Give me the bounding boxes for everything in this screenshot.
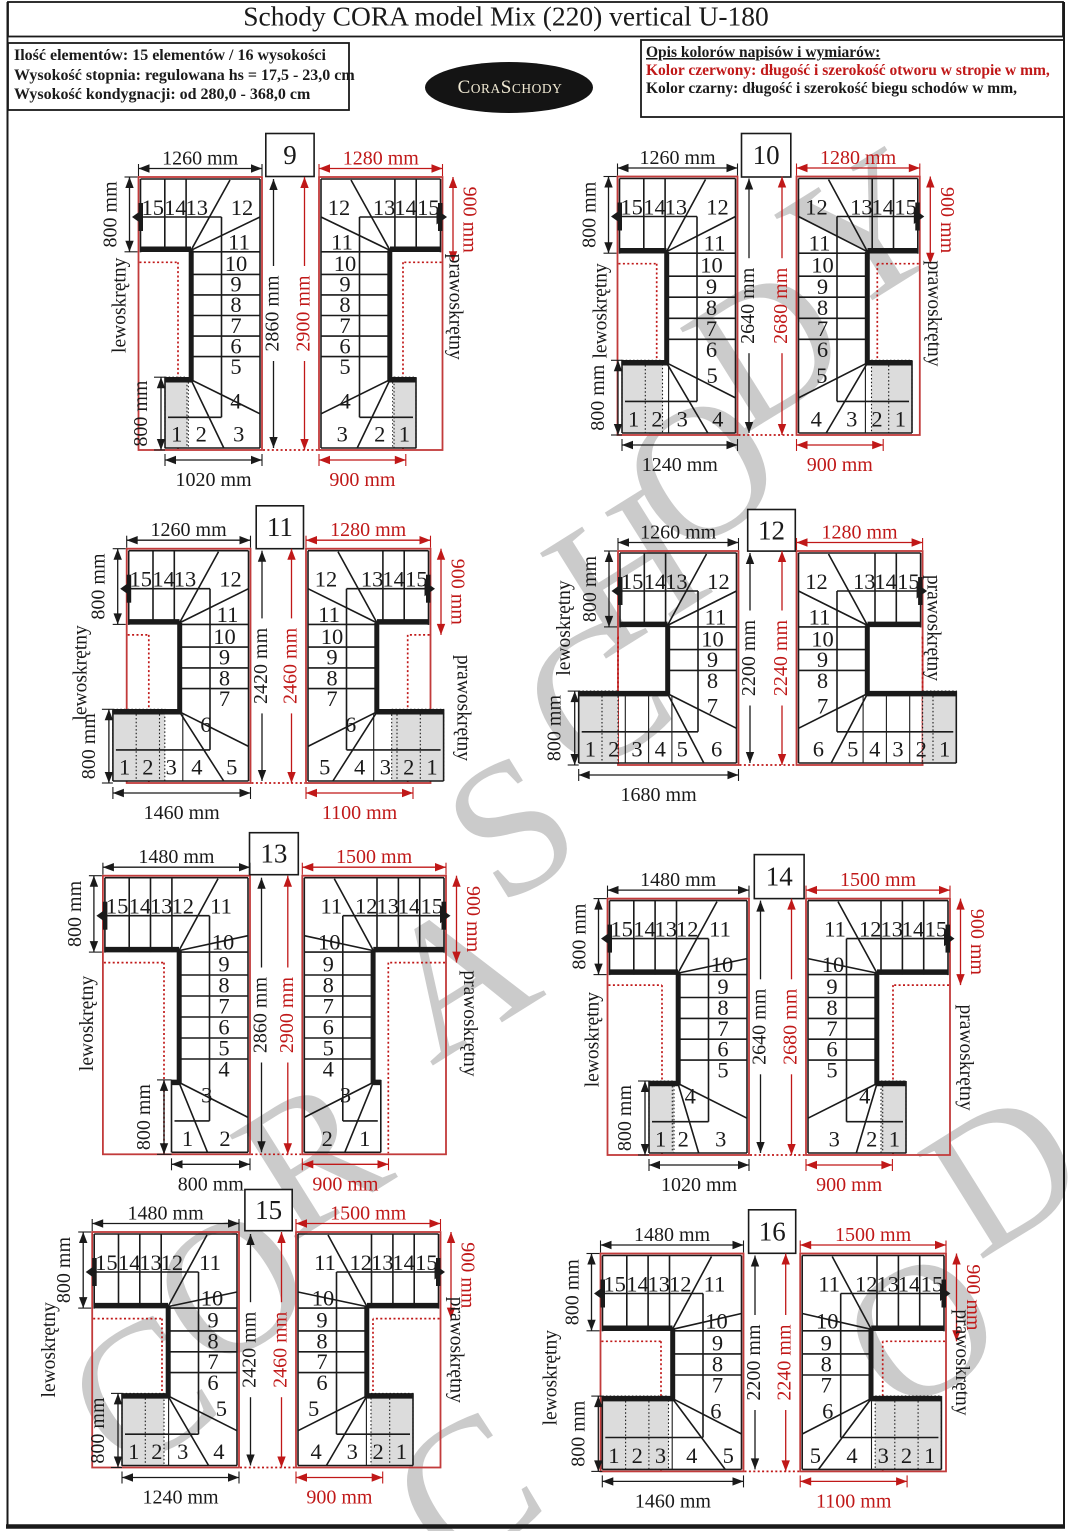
svg-text:13: 13	[880, 917, 903, 942]
svg-text:4: 4	[213, 1439, 224, 1464]
svg-text:1: 1	[889, 1127, 900, 1152]
svg-text:11: 11	[267, 512, 293, 542]
svg-text:12: 12	[161, 1250, 184, 1275]
svg-text:3: 3	[846, 407, 857, 432]
svg-text:14: 14	[643, 195, 666, 220]
svg-text:12: 12	[707, 569, 730, 594]
svg-text:1: 1	[628, 407, 639, 432]
svg-text:lewoskrętny: lewoskrętny	[77, 975, 98, 1071]
svg-text:13: 13	[876, 1272, 899, 1297]
svg-text:900 mm: 900 mm	[816, 1174, 883, 1196]
svg-text:12: 12	[315, 567, 338, 592]
svg-text:13: 13	[648, 1272, 671, 1297]
svg-text:lewoskrętny: lewoskrętny	[554, 580, 575, 676]
svg-text:prawoskrętny: prawoskrętny	[923, 575, 944, 681]
svg-text:15: 15	[894, 195, 917, 220]
svg-text:1480 mm: 1480 mm	[138, 846, 215, 868]
svg-text:6: 6	[822, 1399, 833, 1424]
svg-text:2: 2	[866, 1127, 877, 1152]
svg-text:2200 mm: 2200 mm	[743, 1324, 765, 1401]
svg-text:1240 mm: 1240 mm	[142, 1487, 219, 1509]
svg-text:3: 3	[201, 1082, 212, 1107]
svg-text:1280 mm: 1280 mm	[343, 148, 420, 170]
svg-text:6: 6	[345, 712, 356, 737]
svg-text:8: 8	[817, 668, 828, 693]
svg-text:3: 3	[340, 1082, 351, 1107]
svg-text:800 mm: 800 mm	[53, 1237, 75, 1304]
svg-text:14: 14	[874, 569, 897, 594]
svg-text:1020 mm: 1020 mm	[661, 1174, 738, 1196]
svg-text:4: 4	[339, 389, 350, 414]
svg-text:5: 5	[339, 354, 350, 379]
svg-text:13: 13	[371, 1250, 394, 1275]
svg-text:4: 4	[859, 1084, 870, 1109]
svg-text:2: 2	[372, 1439, 383, 1464]
svg-text:2: 2	[901, 1443, 912, 1468]
svg-text:12: 12	[805, 569, 828, 594]
svg-text:2: 2	[374, 422, 385, 447]
svg-text:2460 mm: 2460 mm	[270, 1311, 292, 1388]
svg-text:7: 7	[817, 694, 828, 719]
svg-text:5: 5	[230, 354, 241, 379]
svg-text:1240 mm: 1240 mm	[642, 454, 719, 476]
svg-text:15: 15	[421, 894, 444, 919]
svg-text:14: 14	[382, 567, 405, 592]
svg-text:3: 3	[878, 1443, 889, 1468]
svg-text:15: 15	[415, 1250, 438, 1275]
svg-text:1100 mm: 1100 mm	[816, 1490, 892, 1512]
svg-text:12: 12	[855, 1272, 878, 1297]
svg-text:2: 2	[219, 1126, 230, 1151]
svg-text:14: 14	[394, 195, 417, 220]
svg-text:14: 14	[118, 1250, 141, 1275]
svg-text:800 mm: 800 mm	[133, 1084, 155, 1151]
svg-text:1500 mm: 1500 mm	[330, 1203, 407, 1225]
svg-text:2900 mm: 2900 mm	[293, 275, 315, 352]
svg-text:8: 8	[707, 668, 718, 693]
svg-text:1: 1	[924, 1443, 935, 1468]
svg-text:14: 14	[898, 1272, 921, 1297]
svg-text:Opis kolorów napisów i wymiaró: Opis kolorów napisów i wymiarów:	[646, 44, 880, 61]
svg-text:2460 mm: 2460 mm	[280, 627, 302, 704]
svg-text:lewoskrętny: lewoskrętny	[583, 992, 604, 1088]
svg-text:6: 6	[817, 337, 828, 362]
svg-text:2200 mm: 2200 mm	[738, 620, 760, 697]
svg-text:6: 6	[706, 337, 717, 362]
svg-text:800 mm: 800 mm	[579, 181, 601, 248]
svg-text:2: 2	[151, 1439, 162, 1464]
svg-text:2640 mm: 2640 mm	[737, 267, 759, 344]
svg-text:12: 12	[676, 917, 699, 942]
svg-text:5: 5	[826, 1058, 837, 1083]
svg-text:1280 mm: 1280 mm	[330, 519, 407, 541]
svg-text:13: 13	[373, 195, 396, 220]
svg-text:prawoskrętny: prawoskrętny	[446, 1297, 467, 1403]
svg-text:4: 4	[310, 1439, 321, 1464]
svg-text:5: 5	[308, 1396, 319, 1421]
svg-text:2: 2	[403, 755, 414, 780]
svg-text:800 mm: 800 mm	[544, 695, 566, 762]
svg-text:5: 5	[723, 1443, 734, 1468]
svg-text:5: 5	[677, 737, 688, 762]
svg-text:2860 mm: 2860 mm	[250, 977, 272, 1054]
svg-text:14: 14	[392, 1250, 415, 1275]
svg-text:CORASCHODY: CORASCHODY	[458, 77, 563, 98]
svg-text:1460 mm: 1460 mm	[144, 802, 221, 824]
svg-text:prawoskrętny: prawoskrętny	[459, 970, 480, 1076]
svg-text:4: 4	[354, 755, 365, 780]
svg-text:800 mm: 800 mm	[78, 713, 100, 780]
svg-text:Kolor czerwony: długość i szer: Kolor czerwony: długość i szerokość otwo…	[646, 62, 1050, 79]
svg-text:5: 5	[706, 363, 717, 388]
svg-text:1260 mm: 1260 mm	[639, 147, 716, 169]
svg-text:13: 13	[186, 195, 209, 220]
svg-text:13: 13	[260, 839, 287, 869]
svg-text:13: 13	[376, 894, 399, 919]
svg-text:12: 12	[669, 1272, 692, 1297]
svg-text:800 mm: 800 mm	[100, 181, 122, 248]
svg-text:900 mm: 900 mm	[807, 454, 874, 476]
svg-text:1: 1	[171, 422, 182, 447]
svg-text:13: 13	[850, 195, 873, 220]
svg-text:4: 4	[686, 1443, 697, 1468]
svg-text:2680 mm: 2680 mm	[780, 988, 802, 1065]
svg-text:Ilość elementów: 15 elementów: Ilość elementów: 15 elementów / 16 wysok…	[14, 47, 327, 64]
svg-text:11: 11	[314, 1250, 336, 1275]
svg-text:7: 7	[707, 694, 718, 719]
svg-text:14: 14	[164, 195, 187, 220]
svg-text:15: 15	[620, 195, 643, 220]
svg-text:11: 11	[824, 917, 846, 942]
svg-text:2240 mm: 2240 mm	[770, 620, 792, 697]
svg-text:900 mm: 900 mm	[459, 187, 481, 254]
svg-text:3: 3	[892, 737, 903, 762]
svg-text:14: 14	[398, 894, 421, 919]
svg-text:12: 12	[706, 195, 729, 220]
svg-text:15: 15	[417, 195, 440, 220]
svg-text:3: 3	[380, 755, 391, 780]
svg-text:1500 mm: 1500 mm	[835, 1224, 912, 1246]
svg-text:13: 13	[361, 567, 384, 592]
svg-text:1480 mm: 1480 mm	[640, 869, 717, 891]
svg-text:1100 mm: 1100 mm	[322, 802, 398, 824]
svg-text:800 mm: 800 mm	[614, 1085, 636, 1152]
svg-text:2: 2	[651, 407, 662, 432]
svg-text:15: 15	[95, 1250, 118, 1275]
svg-text:2: 2	[678, 1127, 689, 1152]
svg-text:Wysokość stopnia: regulowana: Wysokość stopnia: regulowana hs = 17,5 -…	[14, 67, 355, 84]
svg-text:900 mm: 900 mm	[936, 187, 958, 254]
svg-text:3: 3	[655, 1443, 666, 1468]
svg-text:3: 3	[347, 1439, 358, 1464]
svg-text:1: 1	[426, 755, 437, 780]
svg-text:15: 15	[106, 894, 129, 919]
svg-text:1680 mm: 1680 mm	[621, 784, 698, 806]
svg-text:1: 1	[128, 1439, 139, 1464]
svg-text:2: 2	[632, 1443, 643, 1468]
svg-text:prawoskrętny: prawoskrętny	[923, 260, 944, 366]
svg-text:6: 6	[813, 737, 824, 762]
svg-text:14: 14	[766, 862, 794, 892]
svg-text:5: 5	[810, 1443, 821, 1468]
svg-text:12: 12	[328, 195, 351, 220]
svg-text:800 mm: 800 mm	[567, 1400, 589, 1467]
svg-text:3: 3	[166, 755, 177, 780]
svg-text:1260 mm: 1260 mm	[640, 522, 717, 544]
svg-text:1500 mm: 1500 mm	[840, 869, 917, 891]
svg-text:1: 1	[359, 1126, 370, 1151]
svg-text:800 mm: 800 mm	[87, 1397, 109, 1464]
svg-text:11: 11	[199, 1250, 221, 1275]
svg-text:2: 2	[196, 422, 207, 447]
svg-text:1280 mm: 1280 mm	[821, 522, 898, 544]
svg-text:5: 5	[847, 737, 858, 762]
svg-text:13: 13	[853, 569, 876, 594]
svg-text:1500 mm: 1500 mm	[336, 846, 413, 868]
svg-text:lewoskrętny: lewoskrętny	[39, 1302, 60, 1398]
svg-text:800 mm: 800 mm	[587, 364, 609, 431]
svg-text:14: 14	[872, 195, 895, 220]
svg-text:15: 15	[405, 567, 428, 592]
svg-text:2680 mm: 2680 mm	[770, 267, 792, 344]
svg-text:12: 12	[231, 195, 254, 220]
svg-text:7: 7	[821, 1373, 832, 1398]
svg-text:2: 2	[142, 755, 153, 780]
svg-text:7: 7	[712, 1373, 723, 1398]
svg-text:2640 mm: 2640 mm	[749, 988, 771, 1065]
svg-text:11: 11	[818, 1272, 840, 1297]
svg-text:800 mm: 800 mm	[64, 880, 86, 947]
svg-text:lewoskrętny: lewoskrętny	[541, 1330, 562, 1426]
svg-text:13: 13	[665, 569, 688, 594]
svg-text:4: 4	[811, 407, 822, 432]
svg-text:4: 4	[230, 389, 241, 414]
svg-text:1260 mm: 1260 mm	[162, 148, 239, 170]
svg-text:3: 3	[337, 422, 348, 447]
svg-text:12: 12	[355, 894, 378, 919]
svg-text:lewoskrętny: lewoskrętny	[110, 257, 131, 353]
svg-text:3: 3	[715, 1127, 726, 1152]
svg-text:lewoskrętny: lewoskrętny	[591, 263, 612, 359]
svg-text:prawoskrętny: prawoskrętny	[951, 1309, 972, 1415]
svg-text:15: 15	[621, 569, 644, 594]
svg-text:800 mm: 800 mm	[579, 556, 601, 623]
svg-text:14: 14	[626, 1272, 649, 1297]
svg-text:12: 12	[219, 567, 242, 592]
svg-text:1: 1	[895, 407, 906, 432]
svg-text:4: 4	[685, 1084, 696, 1109]
svg-text:1460 mm: 1460 mm	[635, 1490, 712, 1512]
svg-text:prawoskrętny: prawoskrętny	[453, 655, 474, 761]
svg-text:13: 13	[665, 195, 688, 220]
svg-text:4: 4	[712, 407, 723, 432]
svg-text:7: 7	[219, 686, 230, 711]
svg-text:900 mm: 900 mm	[966, 909, 988, 976]
svg-text:4: 4	[323, 1057, 334, 1082]
svg-text:6: 6	[710, 1399, 721, 1424]
svg-text:4: 4	[869, 737, 880, 762]
svg-text:prawoskrętny: prawoskrętny	[445, 254, 466, 360]
svg-text:5: 5	[226, 755, 237, 780]
svg-text:11: 11	[210, 894, 232, 919]
svg-text:2240 mm: 2240 mm	[774, 1324, 796, 1401]
svg-text:2900 mm: 2900 mm	[276, 977, 298, 1054]
svg-text:12: 12	[171, 894, 194, 919]
svg-text:Schody CORA model Mix (220) ve: Schody CORA model Mix (220) vertical U-1…	[243, 1, 769, 32]
svg-text:5: 5	[319, 755, 330, 780]
svg-text:10: 10	[753, 140, 780, 170]
svg-text:Kolor czarny: długość i szerok: Kolor czarny: długość i szerokość biegu …	[646, 80, 1017, 97]
svg-text:3: 3	[233, 422, 244, 447]
svg-text:1: 1	[119, 755, 130, 780]
svg-text:800 mm: 800 mm	[130, 380, 152, 447]
svg-text:900 mm: 900 mm	[462, 886, 484, 953]
svg-text:4: 4	[218, 1057, 229, 1082]
svg-text:3: 3	[177, 1439, 188, 1464]
svg-text:2420 mm: 2420 mm	[239, 1311, 261, 1388]
svg-text:15: 15	[130, 567, 153, 592]
svg-text:prawoskrętny: prawoskrętny	[955, 1005, 976, 1111]
svg-text:6: 6	[711, 737, 722, 762]
svg-text:800 mm: 800 mm	[569, 903, 591, 970]
svg-text:16: 16	[759, 1217, 786, 1247]
svg-text:12: 12	[805, 195, 828, 220]
svg-text:2420 mm: 2420 mm	[250, 627, 272, 704]
svg-text:13: 13	[174, 567, 197, 592]
svg-text:3: 3	[829, 1127, 840, 1152]
svg-text:13: 13	[655, 917, 678, 942]
svg-text:1480 mm: 1480 mm	[128, 1203, 205, 1225]
svg-text:11: 11	[709, 917, 731, 942]
svg-text:800 mm: 800 mm	[178, 1173, 245, 1195]
svg-text:15: 15	[897, 569, 920, 594]
svg-text:2: 2	[322, 1126, 333, 1151]
svg-text:1: 1	[939, 737, 950, 762]
svg-text:2860 mm: 2860 mm	[262, 275, 284, 352]
svg-text:15: 15	[603, 1272, 626, 1297]
svg-text:800 mm: 800 mm	[562, 1259, 584, 1326]
svg-text:11: 11	[320, 894, 342, 919]
svg-text:4: 4	[846, 1443, 857, 1468]
svg-text:4: 4	[191, 755, 202, 780]
svg-text:14: 14	[644, 569, 667, 594]
svg-text:6: 6	[207, 1370, 218, 1395]
svg-text:14: 14	[152, 567, 175, 592]
svg-text:6: 6	[316, 1370, 327, 1395]
svg-text:15: 15	[141, 195, 164, 220]
svg-text:13: 13	[139, 1250, 162, 1275]
svg-text:6: 6	[200, 712, 211, 737]
svg-text:1260 mm: 1260 mm	[151, 519, 228, 541]
svg-text:3: 3	[631, 737, 642, 762]
svg-text:1: 1	[396, 1439, 407, 1464]
svg-text:1020 mm: 1020 mm	[175, 469, 252, 491]
svg-text:12: 12	[350, 1250, 373, 1275]
svg-text:15: 15	[925, 917, 948, 942]
svg-text:800 mm: 800 mm	[88, 553, 110, 620]
svg-text:5: 5	[717, 1058, 728, 1083]
svg-text:1: 1	[655, 1127, 666, 1152]
svg-text:15: 15	[610, 917, 633, 942]
svg-text:5: 5	[216, 1396, 227, 1421]
svg-text:15: 15	[255, 1195, 282, 1225]
svg-text:13: 13	[150, 894, 173, 919]
svg-text:14: 14	[129, 894, 152, 919]
svg-text:9: 9	[283, 140, 297, 170]
svg-text:2: 2	[871, 407, 882, 432]
svg-text:lewoskrętny: lewoskrętny	[71, 625, 92, 721]
svg-text:14: 14	[902, 917, 925, 942]
svg-text:Wysokość kondygnacji: od 280,0: Wysokość kondygnacji: od 280,0 - 368,0 c…	[14, 86, 311, 103]
svg-text:1: 1	[585, 737, 596, 762]
svg-text:12: 12	[758, 515, 785, 545]
svg-text:2: 2	[916, 737, 927, 762]
svg-text:14: 14	[633, 917, 656, 942]
svg-text:11: 11	[704, 1272, 726, 1297]
svg-text:12: 12	[859, 917, 882, 942]
svg-text:1280 mm: 1280 mm	[820, 147, 897, 169]
svg-text:1480 mm: 1480 mm	[634, 1224, 711, 1246]
svg-text:900 mm: 900 mm	[306, 1487, 373, 1509]
svg-text:4: 4	[655, 737, 666, 762]
svg-text:7: 7	[326, 686, 337, 711]
svg-text:3: 3	[677, 407, 688, 432]
svg-text:1: 1	[399, 422, 410, 447]
svg-text:5: 5	[816, 363, 827, 388]
svg-text:1: 1	[182, 1126, 193, 1151]
svg-text:900 mm: 900 mm	[447, 559, 469, 626]
svg-text:900 mm: 900 mm	[312, 1173, 379, 1195]
svg-text:1: 1	[608, 1443, 619, 1468]
svg-text:900 mm: 900 mm	[329, 469, 396, 491]
svg-text:2: 2	[608, 737, 619, 762]
svg-text:15: 15	[921, 1272, 944, 1297]
